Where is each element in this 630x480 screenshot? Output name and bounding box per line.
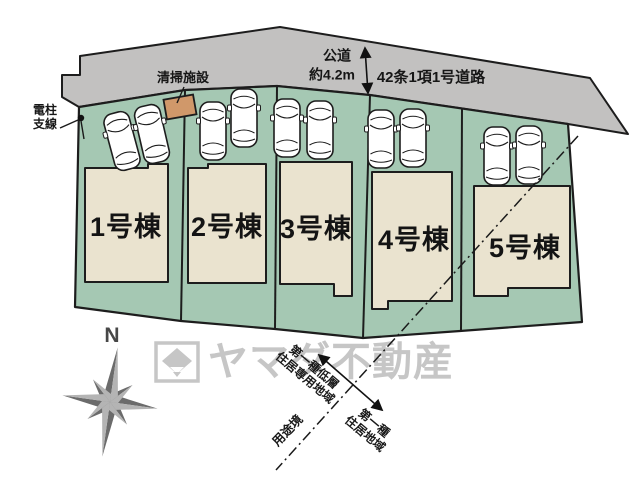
road-surface-label: 公道 (323, 49, 351, 64)
lot-label-2: 2号棟 (191, 213, 263, 241)
car-icon (228, 89, 261, 147)
lot-label-3: 3号棟 (280, 215, 352, 243)
compass-rose-icon (55, 341, 165, 463)
cleaning-facility-label: 清掃施設 (157, 71, 209, 85)
site-plan: ヤマダ不動産 清掃施設 電柱 支線 公道 約4.2m 42条1項1号道路 1号棟… (0, 0, 630, 480)
lot-label-4: 4号棟 (378, 226, 450, 254)
utility-pole-label-line2: 支線 (33, 118, 57, 132)
cleaning-facility-shape (163, 95, 196, 120)
road-width-label: 約4.2m (309, 68, 355, 83)
lot-label-5: 5号棟 (489, 234, 561, 262)
watermark-logo-icon (154, 341, 200, 383)
car-icon (271, 99, 304, 157)
car-icon (481, 127, 514, 185)
utility-pole-label: 電柱 支線 (33, 104, 57, 132)
car-icon (513, 126, 546, 184)
car-icon (397, 109, 430, 167)
lot-label-1: 1号棟 (90, 213, 162, 241)
car-icon (197, 102, 230, 160)
car-icon (304, 101, 337, 159)
lot-divider (461, 109, 462, 330)
car-icon (365, 110, 398, 168)
road-name-label: 42条1項1号道路 (377, 70, 485, 86)
compass-north-label: N (104, 325, 119, 347)
utility-pole-label-line1: 電柱 (33, 104, 57, 118)
